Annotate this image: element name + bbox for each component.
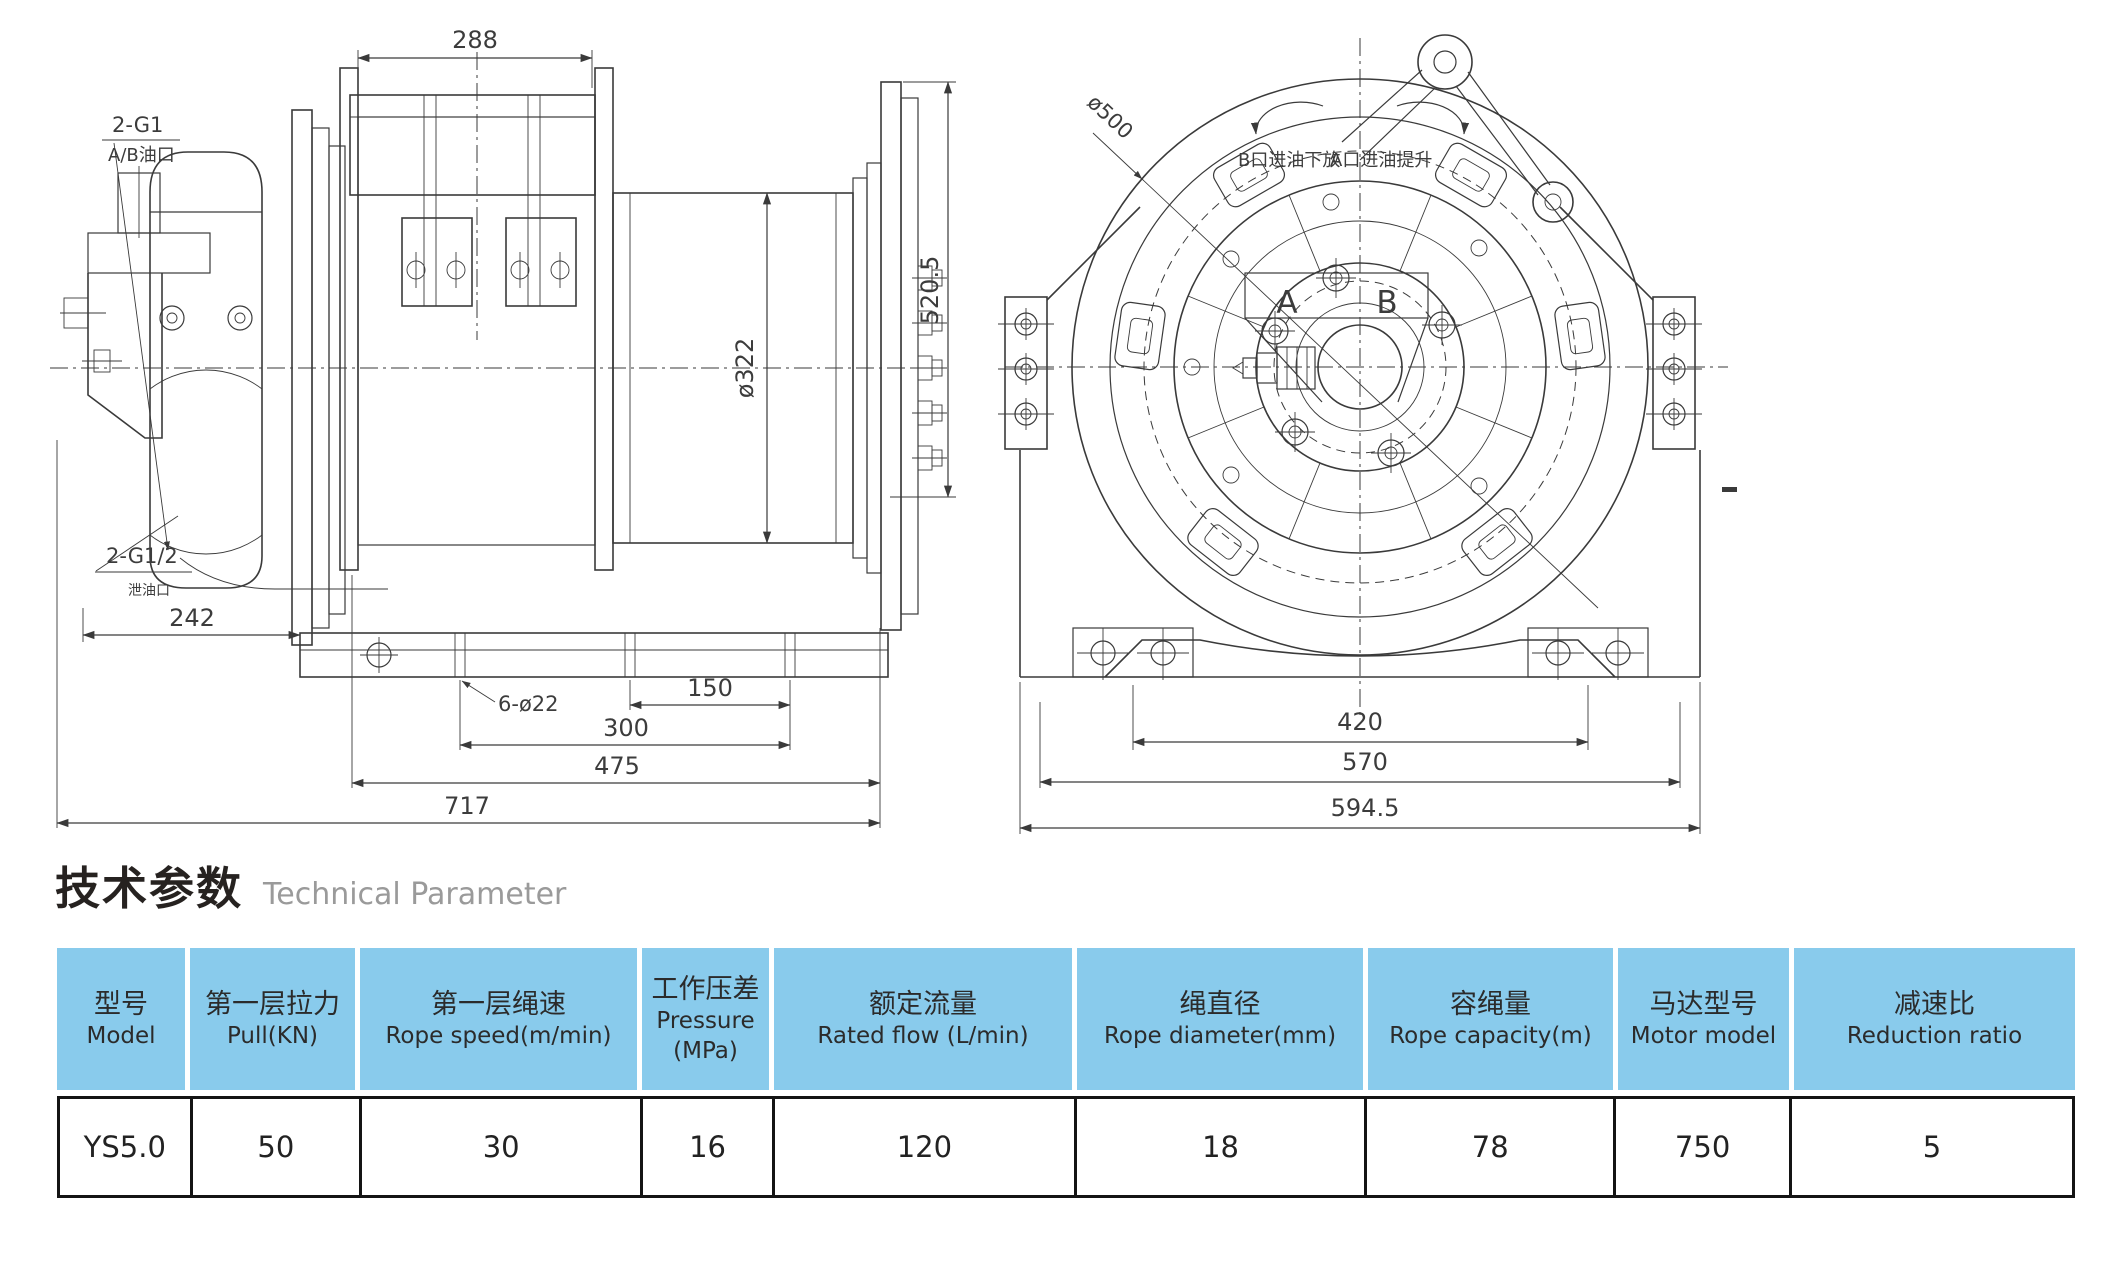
col-header-pressure: 工作压差 Pressure (MPa) <box>642 948 774 1090</box>
winch-side-view-drawing: 288 520.5 ø322 2-G1 A/B油口 2-G1/2 泄油口 242… <box>50 10 970 850</box>
col-header-rope-diameter: 绳直径 Rope diameter(mm) <box>1077 948 1368 1090</box>
dim-288-label: 288 <box>452 26 498 54</box>
diagonal-line <box>1142 179 1598 608</box>
heading-en: Technical Parameter <box>263 877 566 912</box>
dim-717-label: 717 <box>444 792 490 820</box>
dim-520-5-label: 520.5 <box>916 256 944 325</box>
col-header-reduction-ratio: 减速比 Reduction ratio <box>1794 948 2075 1090</box>
rotation-arrow-right <box>1397 102 1464 134</box>
rotation-note-a: A口进油提升 <box>1330 150 1432 171</box>
right-support-plates <box>881 82 918 630</box>
cell-rope-speed: 30 <box>362 1099 643 1195</box>
drum <box>340 68 613 570</box>
dim-150-label: 150 <box>687 674 733 702</box>
left-support-plates <box>292 110 345 645</box>
dim-475-label: 475 <box>594 752 640 780</box>
col-header-motor-model: 马达型号 Motor model <box>1618 948 1794 1090</box>
dim-420-label: 420 <box>1337 708 1383 736</box>
lever-arm <box>1342 35 1573 222</box>
rotation-arrow-left <box>1256 102 1323 134</box>
rotation-note-b: B口进油下放 <box>1238 150 1340 171</box>
left-mount-plate <box>998 297 1054 449</box>
cell-rope-capacity: 78 <box>1367 1099 1616 1195</box>
cell-rated-flow: 120 <box>775 1099 1077 1195</box>
cell-pull: 50 <box>193 1099 363 1195</box>
table-header-row: 型号 Model 第一层拉力 Pull(KN) 第一层绳速 Rope speed… <box>57 948 2075 1090</box>
col-header-rope-capacity: 容绳量 Rope capacity(m) <box>1368 948 1618 1090</box>
drain-port-label-line1: 2-G1/2 <box>106 544 178 568</box>
bolt-holes-leader <box>462 681 495 702</box>
cell-rope-diameter: 18 <box>1077 1099 1367 1195</box>
stray-dash-mark <box>1722 487 1737 492</box>
tie-rods <box>424 95 540 306</box>
col-header-rated-flow: 额定流量 Rated flow (L/min) <box>774 948 1077 1090</box>
dim-300-label: 300 <box>603 714 649 742</box>
drain-port-leader2 <box>180 558 388 589</box>
dim-570-label: 570 <box>1342 748 1388 776</box>
cell-motor-model: 750 <box>1616 1099 1791 1195</box>
parameters-table: 型号 Model 第一层拉力 Pull(KN) 第一层绳速 Rope speed… <box>57 948 2075 1198</box>
col-header-rope-speed: 第一层绳速 Rope speed(m/min) <box>360 948 642 1090</box>
oil-port-label-line2: A/B油口 <box>108 145 175 166</box>
col-header-model: 型号 Model <box>57 948 190 1090</box>
bleed-valve <box>1233 347 1315 389</box>
hydraulic-motor <box>114 152 298 588</box>
rope-guard <box>350 95 595 195</box>
winch-front-view-drawing: A B <box>990 10 1750 850</box>
base-frame <box>300 633 888 677</box>
dim-288 <box>358 50 592 88</box>
table-data-row: YS5.0 50 30 16 120 18 78 750 5 <box>57 1096 2075 1198</box>
port-b-label: B <box>1376 285 1397 321</box>
dim-322-label: ø322 <box>731 338 759 399</box>
oil-port-label-line1: 2-G1 <box>112 113 163 137</box>
cell-pressure: 16 <box>643 1099 775 1195</box>
cell-model: YS5.0 <box>60 1099 193 1195</box>
rope-clamps <box>402 218 576 306</box>
drain-port-label-line2: 泄油口 <box>128 583 170 599</box>
section-heading: 技术参数 Technical Parameter <box>55 852 566 917</box>
col-header-pull: 第一层拉力 Pull(KN) <box>190 948 360 1090</box>
cell-reduction-ratio: 5 <box>1792 1099 2072 1195</box>
bolt-holes-label: 6-ø22 <box>498 692 559 716</box>
dim-594-5-label: 594.5 <box>1331 794 1400 822</box>
heading-zh: 技术参数 <box>55 852 243 917</box>
dim-242-label: 242 <box>169 604 215 632</box>
dia-500-label: ø500 <box>1083 90 1138 144</box>
dim-extension-lines <box>57 440 880 828</box>
right-mount-plate <box>1646 297 1702 449</box>
